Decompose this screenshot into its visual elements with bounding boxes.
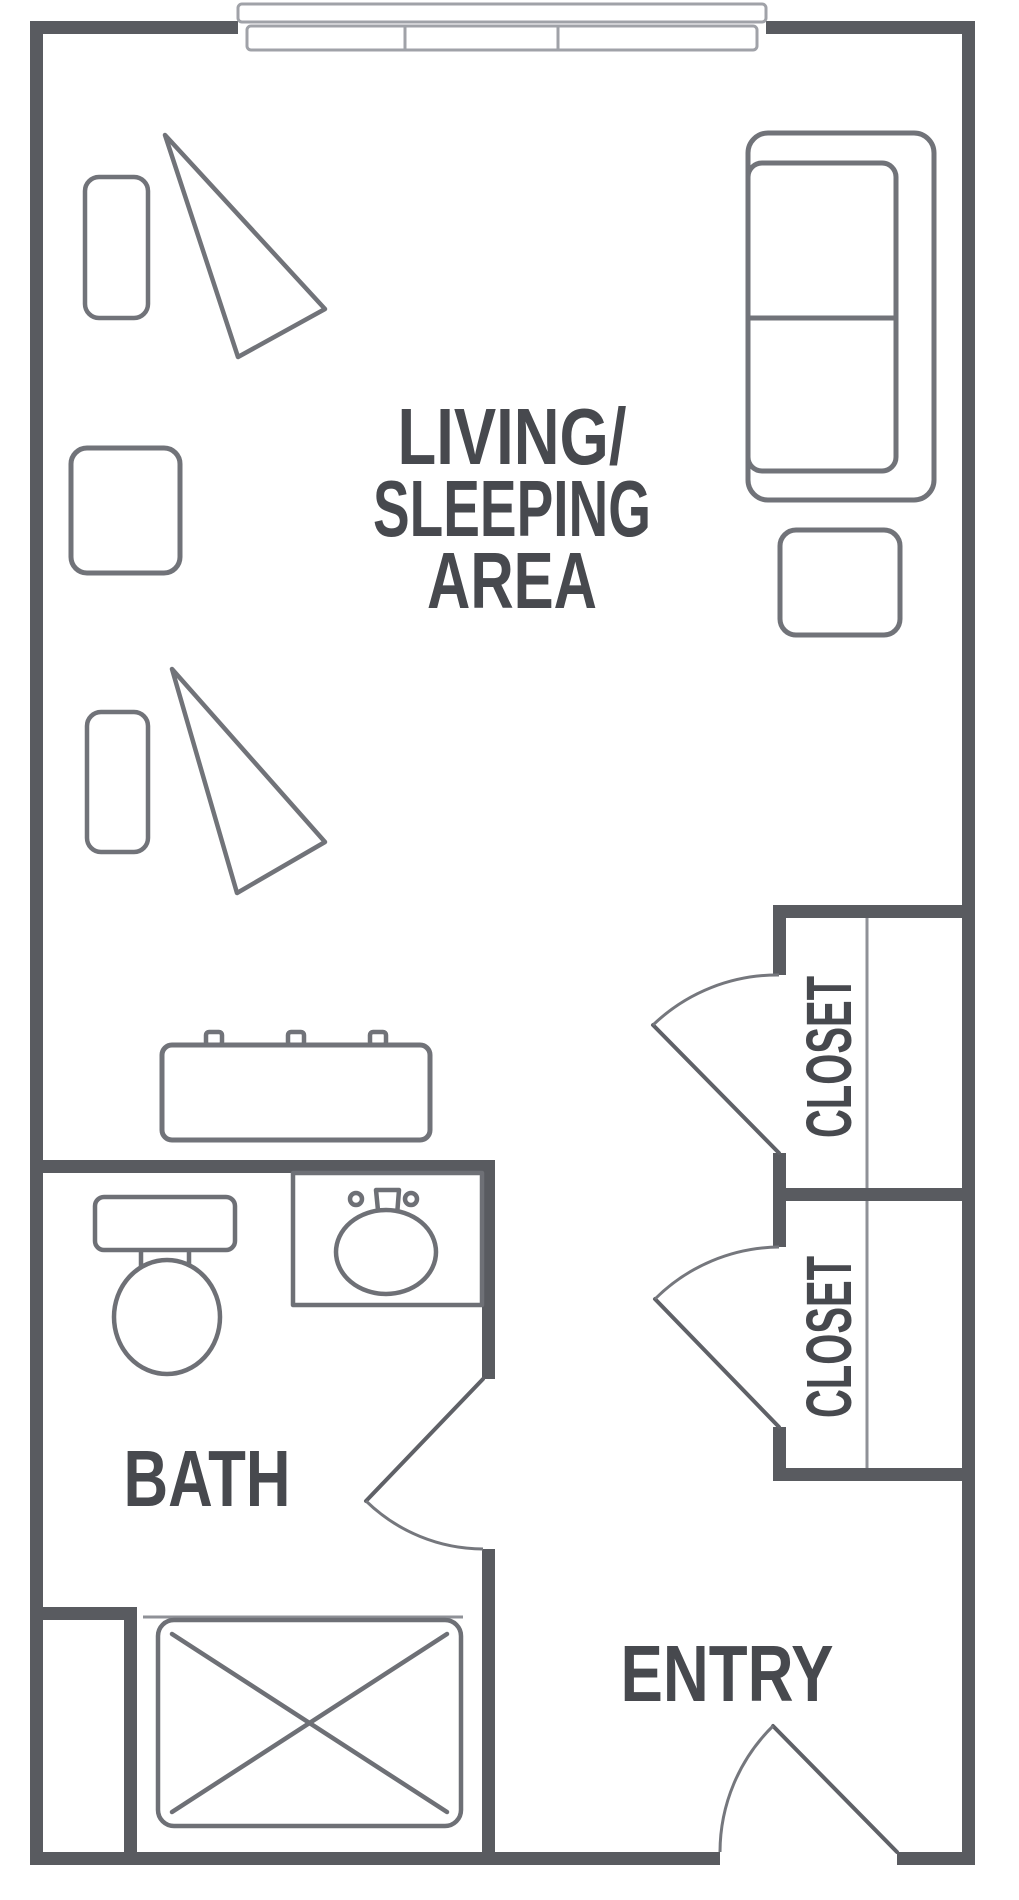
closet-lower-label: CLOSET bbox=[793, 1256, 865, 1418]
chaise-icon bbox=[165, 135, 325, 357]
wall-left bbox=[30, 21, 43, 1865]
entry-label: ENTRY bbox=[621, 1629, 834, 1718]
wall-niche-right bbox=[124, 1607, 137, 1852]
window-icon bbox=[238, 4, 766, 50]
door-swing-icon-closet-lower bbox=[655, 1247, 779, 1427]
wall-top-right bbox=[766, 21, 975, 34]
wall-closet-bottom bbox=[773, 1468, 975, 1481]
wall-bath-right-lower bbox=[482, 1549, 495, 1852]
armchair-icon bbox=[87, 712, 148, 852]
dresser-icon bbox=[162, 1032, 430, 1140]
sofa-icon bbox=[748, 133, 934, 500]
wall-closet-divider bbox=[773, 1188, 975, 1201]
bath-label: BATH bbox=[124, 1434, 291, 1523]
shower-icon bbox=[143, 1617, 463, 1826]
living-area-label-line3: AREA bbox=[427, 536, 597, 625]
floor-plan-drawing: LIVING/ SLEEPING AREA BATH ENTRY CLOSET … bbox=[0, 0, 1019, 1900]
door-swing-icon-closet-upper bbox=[653, 975, 779, 1153]
wall-closet2-stub-upper bbox=[773, 1201, 786, 1247]
door-swing-icon-entry bbox=[720, 1726, 897, 1852]
wall-niche-top bbox=[43, 1607, 137, 1620]
side-table-icon bbox=[780, 530, 900, 635]
wall-bottom-right bbox=[897, 1852, 975, 1865]
chaise-icon bbox=[172, 669, 325, 893]
wall-top-left bbox=[30, 21, 238, 34]
wall-closet-top bbox=[773, 905, 975, 918]
sink-icon bbox=[293, 1173, 482, 1305]
toilet-icon bbox=[95, 1197, 235, 1374]
wall-closet1-stub-upper bbox=[773, 905, 786, 975]
door-swing-icon-bath bbox=[366, 1379, 483, 1549]
closet-upper-label: CLOSET bbox=[793, 976, 865, 1138]
wall-right bbox=[962, 21, 975, 1865]
floor-plan: LIVING/ SLEEPING AREA BATH ENTRY CLOSET … bbox=[0, 0, 1019, 1900]
square-table-icon bbox=[71, 448, 180, 573]
wall-bottom-left bbox=[30, 1852, 720, 1865]
armchair-icon bbox=[85, 177, 148, 318]
